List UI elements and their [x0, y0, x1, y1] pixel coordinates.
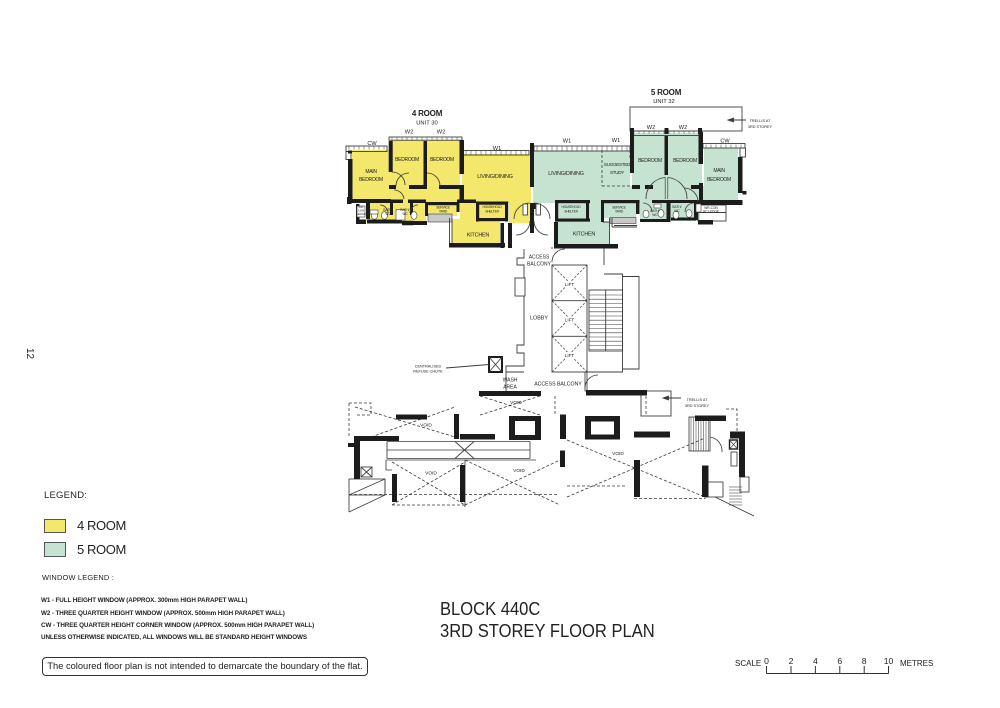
- svg-text:ACCESS: ACCESS: [529, 255, 550, 261]
- svg-text:BEDROOM: BEDROOM: [673, 158, 697, 164]
- svg-text:VOID: VOID: [510, 400, 522, 406]
- svg-text:HOUSEHOLD: HOUSEHOLD: [482, 205, 502, 209]
- svg-text:LEDGE: LEDGE: [356, 212, 366, 216]
- svg-text:YARD: YARD: [439, 210, 448, 214]
- svg-text:ACCESS BALCONY: ACCESS BALCONY: [534, 382, 582, 388]
- svg-text:WASH: WASH: [503, 378, 518, 384]
- svg-text:W2: W2: [647, 125, 655, 131]
- svg-text:SHELTER: SHELTER: [564, 210, 578, 214]
- svg-text:CENTRALISED: CENTRALISED: [415, 365, 442, 369]
- svg-text:10: 10: [884, 656, 894, 666]
- svg-text:W2: W2: [437, 130, 445, 136]
- svg-text:KITCHEN: KITCHEN: [573, 232, 596, 238]
- svg-text:3RD STOREY: 3RD STOREY: [748, 125, 773, 129]
- svg-text:WC: WC: [385, 212, 391, 216]
- svg-text:BEDROOM: BEDROOM: [395, 157, 419, 163]
- svg-text:LIFT: LIFT: [565, 353, 575, 358]
- svg-text:AC LEDGE: AC LEDGE: [703, 210, 719, 214]
- svg-text:SHELTER: SHELTER: [485, 210, 499, 214]
- svg-text:TRELLIS AT: TRELLIS AT: [750, 119, 772, 123]
- svg-text:UNIT 30: UNIT 30: [416, 121, 437, 127]
- svg-text:LOBBY: LOBBY: [530, 316, 548, 322]
- svg-text:BEDROOM: BEDROOM: [430, 157, 454, 163]
- svg-text:2: 2: [789, 656, 794, 666]
- svg-text:WC: WC: [674, 209, 680, 213]
- svg-text:VOID: VOID: [612, 451, 624, 457]
- svg-text:LIVING/DINING: LIVING/DINING: [548, 171, 583, 177]
- svg-text:W1: W1: [612, 138, 620, 144]
- svg-text:VOID: VOID: [425, 471, 437, 477]
- svg-text:W2: W2: [405, 130, 413, 136]
- svg-text:5 ROOM: 5 ROOM: [651, 88, 682, 97]
- svg-text:UNIT 32: UNIT 32: [653, 99, 674, 105]
- svg-text:4: 4: [813, 656, 818, 666]
- svg-text:HOUSEHOLD: HOUSEHOLD: [561, 205, 581, 209]
- svg-text:LIVING/DINING: LIVING/DINING: [477, 174, 512, 180]
- svg-text:BEDROOM: BEDROOM: [707, 177, 731, 183]
- svg-text:W2: W2: [679, 125, 687, 131]
- svg-text:LIFT: LIFT: [565, 318, 575, 323]
- svg-text:8: 8: [862, 656, 867, 666]
- svg-text:MAIN: MAIN: [365, 169, 377, 175]
- svg-text:CW: CW: [720, 139, 730, 145]
- svg-text:STUDY: STUDY: [610, 170, 624, 175]
- svg-text:4 ROOM: 4 ROOM: [412, 109, 443, 118]
- svg-text:VOID: VOID: [420, 423, 432, 429]
- svg-text:W1: W1: [493, 146, 501, 152]
- svg-text:WC: WC: [652, 213, 658, 217]
- svg-text:SUGGESTED: SUGGESTED: [604, 162, 631, 167]
- svg-text:BEDROOM: BEDROOM: [359, 177, 383, 183]
- svg-text:TRELLIS AT: TRELLIS AT: [687, 398, 709, 402]
- svg-text:LIFT: LIFT: [565, 282, 575, 287]
- svg-text:REFUSE CHUTE: REFUSE CHUTE: [413, 370, 443, 374]
- svg-text:6: 6: [837, 656, 842, 666]
- svg-text:3RD STOREY: 3RD STOREY: [685, 404, 710, 408]
- svg-text:YARD: YARD: [615, 210, 624, 214]
- svg-text:MAIN: MAIN: [713, 168, 725, 174]
- svg-text:WC: WC: [402, 212, 408, 216]
- svg-text:CW: CW: [367, 141, 377, 147]
- svg-text:BALCONY: BALCONY: [527, 262, 552, 268]
- svg-text:W1: W1: [563, 139, 571, 145]
- svg-text:BEDROOM: BEDROOM: [638, 158, 662, 164]
- svg-text:AREA: AREA: [503, 385, 517, 391]
- svg-text:KITCHEN: KITCHEN: [467, 233, 490, 239]
- svg-text:VOID: VOID: [513, 468, 525, 474]
- svg-text:0: 0: [764, 656, 769, 666]
